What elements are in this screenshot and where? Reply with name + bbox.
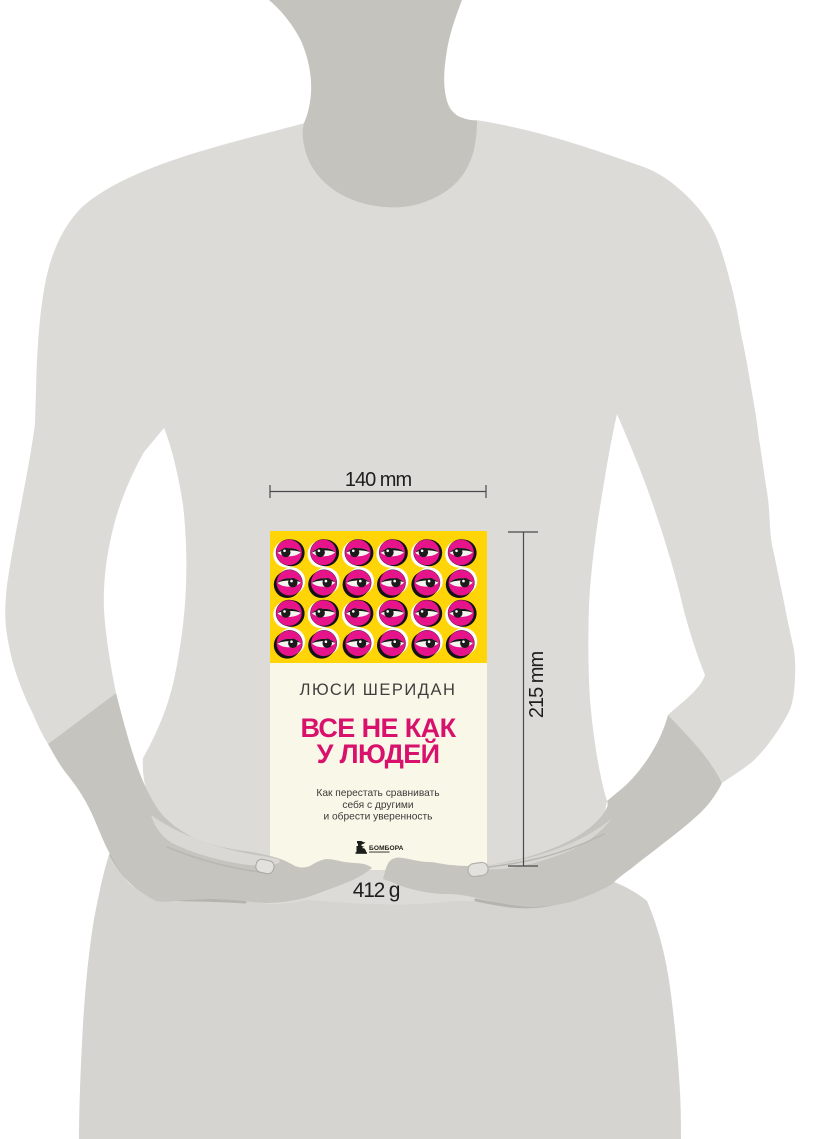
svg-text:ЛЮСИ ШЕРИДАН: ЛЮСИ ШЕРИДАН bbox=[300, 681, 457, 699]
svg-text:140 mm: 140 mm bbox=[345, 469, 412, 491]
svg-text:БОМБОРА: БОМБОРА bbox=[369, 845, 404, 852]
svg-text:Как перестать сравнивать: Как перестать сравнивать bbox=[316, 788, 439, 799]
svg-text:У ЛЮДЕЙ: У ЛЮДЕЙ bbox=[317, 738, 440, 769]
svg-text:себя с другими: себя с другими bbox=[342, 799, 413, 811]
svg-text:и обрести уверенность: и обрести уверенность bbox=[323, 811, 432, 823]
svg-text:215 mm: 215 mm bbox=[526, 652, 548, 719]
svg-text:412 g: 412 g bbox=[353, 879, 400, 902]
